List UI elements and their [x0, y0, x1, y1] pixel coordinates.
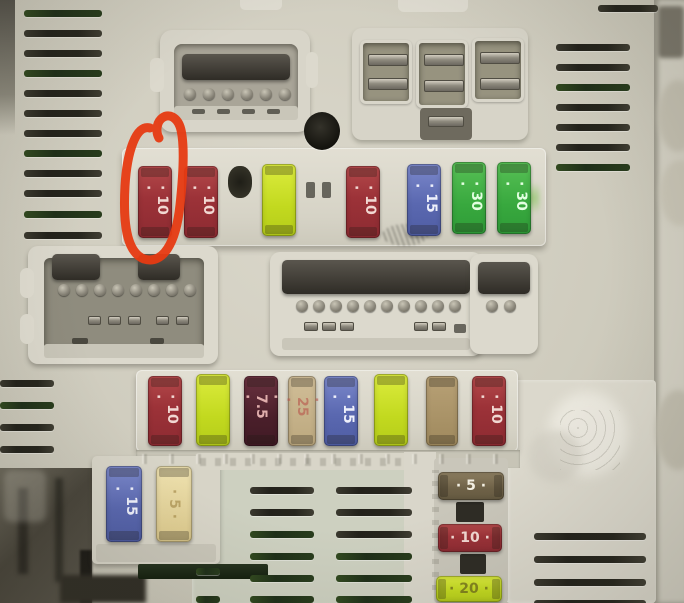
connector-pin [76, 284, 88, 296]
vent-grid-top-texture [200, 458, 408, 466]
fuse [196, 374, 230, 446]
vent-slot [0, 402, 54, 409]
slot-mark [322, 182, 331, 198]
fuse-amp-label: 10 [475, 394, 503, 428]
vent-slot [24, 90, 102, 97]
connector-pin [166, 284, 178, 296]
cover-tab [398, 0, 468, 12]
fuse-amp-label: 10 [187, 185, 215, 219]
slot-mark [150, 338, 164, 344]
terminal-blade [368, 78, 408, 90]
vent-slot [556, 64, 630, 71]
vent-slot [250, 575, 314, 582]
terminal-blade [432, 322, 446, 331]
terminal-blade [108, 316, 121, 325]
slot-mark [242, 109, 255, 114]
vent-slot [24, 30, 102, 37]
connector-pin [112, 284, 124, 296]
fuse-amp-label: 20 [449, 582, 489, 596]
vent-slot [24, 190, 102, 197]
connector-c-wing [20, 268, 34, 298]
fuse: 15 [407, 164, 441, 236]
vent-slot [250, 553, 314, 560]
connector-pin [58, 284, 70, 296]
vent-slot [24, 10, 102, 17]
scuff-speckles [560, 410, 620, 470]
connector-pin [184, 284, 196, 296]
connector-pin [313, 300, 325, 312]
fuse: 10 [438, 524, 502, 552]
fuse: 10 [184, 166, 218, 238]
fuse-amp-label: 10 [141, 185, 169, 219]
vent-slot [24, 232, 102, 239]
connector-pin [330, 300, 342, 312]
connector-c-sill [44, 344, 204, 358]
fuse-amp-label: 15 [327, 394, 355, 428]
connector-pin [260, 88, 272, 100]
fuse-amp-label: 30 [500, 181, 528, 215]
fuse-interconnect [456, 502, 484, 522]
fuse-amp-label: 5 [167, 489, 181, 519]
terminal-blade [88, 316, 101, 325]
connector-pin [432, 300, 444, 312]
connector-c-wing [20, 314, 34, 344]
connector-pin [415, 300, 427, 312]
fuse: 10 [472, 376, 506, 446]
connector-pin [296, 300, 308, 312]
vent-slot [534, 533, 646, 540]
connector-pin [94, 284, 106, 296]
connector-a-wing [306, 52, 318, 88]
connector-pin [381, 300, 393, 312]
fuse-interconnect [460, 554, 486, 574]
vent-slot [556, 164, 630, 171]
vent-slot [250, 531, 314, 538]
empty-slot-blob [228, 166, 252, 198]
terminal-blade [322, 322, 336, 331]
fuse-amp-label: 10 [450, 531, 490, 545]
vent-slot [556, 44, 630, 51]
vent-slot [0, 446, 54, 453]
fuse: 30 [452, 162, 486, 234]
connector-pin [364, 300, 376, 312]
vent-slot [336, 575, 412, 582]
vent-slot [250, 596, 314, 603]
fuse-amp-label: 25 [281, 397, 323, 425]
fuse-circled: 10 [138, 166, 172, 238]
vent-slot [336, 509, 412, 516]
photo-edge-shadow [0, 0, 15, 135]
terminal-blade [424, 80, 464, 92]
fuse: 20 [436, 576, 502, 602]
connector-pin [279, 88, 291, 100]
connector-pin [449, 300, 461, 312]
vent-slot [534, 579, 646, 586]
connector-pin [504, 300, 516, 312]
fuse: 7.5 [244, 376, 278, 446]
vent-slot [24, 130, 102, 137]
terminal-blade [424, 54, 464, 66]
slot-mark [306, 182, 315, 198]
terminal-blade [340, 322, 354, 331]
fuse: 15 [106, 466, 142, 542]
vent-slot [24, 150, 102, 157]
connector-pin [347, 300, 359, 312]
terminal-blade [368, 54, 408, 66]
fuse-pair-sill [96, 544, 216, 562]
vent-slot [196, 568, 220, 575]
connector-pin [398, 300, 410, 312]
fuse: 30 [497, 162, 531, 234]
fuse [374, 374, 408, 446]
fuse-amp-label: 5 [456, 479, 486, 493]
connector-pin [130, 284, 142, 296]
slot-mark [217, 109, 230, 114]
vent-slot [24, 170, 102, 177]
terminal-blade [414, 322, 428, 331]
connector-c-tab [138, 254, 180, 280]
slot-mark [454, 324, 466, 333]
fuse [262, 164, 296, 236]
vent-slot [556, 84, 630, 91]
vent-slot [336, 553, 412, 560]
cover-tab [240, 0, 282, 10]
connector-d-bar [282, 260, 470, 294]
fuse-amp-label: 10 [349, 185, 377, 219]
dark-recess-streak [55, 478, 63, 582]
slot-mark [267, 109, 280, 114]
photo-edge-shadow [658, 6, 684, 58]
vent-slot [598, 5, 658, 12]
vent-slot [336, 596, 412, 603]
connector-pin [184, 88, 196, 100]
dark-recess-highlight [4, 470, 46, 522]
fusebox-photo: 10 10 10 15 30 30 10 7.5 25 15 10 15 5 [0, 0, 684, 603]
terminal-blade [428, 116, 464, 127]
terminal-blade [480, 78, 520, 90]
terminal-cell [472, 38, 524, 102]
slot-mark [72, 338, 88, 344]
fuse-amp-label: 30 [455, 181, 483, 215]
vent-slot [24, 211, 102, 218]
dark-recess-shadow [60, 575, 146, 603]
terminal-blade [304, 322, 318, 331]
connector-pin [222, 88, 234, 100]
connector-pin [486, 300, 498, 312]
fuse-amp-label: 15 [110, 486, 138, 522]
vent-slot [556, 144, 630, 151]
vent-slot [196, 596, 220, 603]
vent-slot [0, 424, 54, 431]
slot-mark [192, 109, 205, 114]
vent-slot [556, 124, 630, 131]
connector-a-wing [150, 58, 164, 92]
connector-a-bar [182, 54, 290, 80]
terminal-blade [480, 52, 520, 64]
terminal-blade [176, 316, 189, 325]
fuse-amp-label: 10 [151, 394, 179, 428]
fuse: 15 [324, 376, 358, 446]
connector-pin [241, 88, 253, 100]
vent-slot [534, 556, 646, 563]
fuse: 10 [148, 376, 182, 446]
vent-slot [336, 531, 412, 538]
vent-slot [24, 50, 102, 57]
connector-e-bar [478, 262, 530, 294]
cover-hole [304, 112, 340, 150]
vent-slot [0, 380, 54, 387]
fuse: 5 [438, 472, 504, 500]
connector-pin [203, 88, 215, 100]
fuse-amp-label: 15 [410, 183, 438, 217]
vent-slot [24, 70, 102, 77]
terminal-blade [156, 316, 169, 325]
fuse [426, 376, 458, 446]
terminal-cell [416, 40, 468, 108]
vent-slot [336, 487, 412, 494]
connector-c-tab [52, 254, 100, 280]
vent-slot [24, 110, 102, 117]
vent-slot [556, 104, 630, 111]
connector-d-sill [282, 338, 470, 350]
fuse: 25 [288, 376, 316, 446]
connector-pin [148, 284, 160, 296]
terminal-blade [128, 316, 141, 325]
vent-slot [250, 487, 314, 494]
fuse: 5 [156, 466, 192, 542]
terminal-cell [360, 40, 412, 104]
fuse-amp-label: 7.5 [240, 394, 282, 428]
vent-slot [250, 509, 314, 516]
fuse: 10 [346, 166, 380, 238]
